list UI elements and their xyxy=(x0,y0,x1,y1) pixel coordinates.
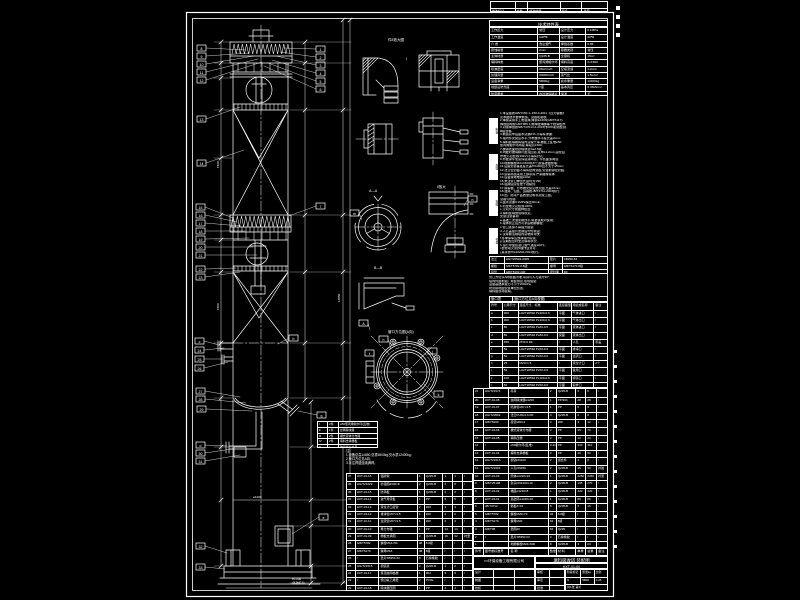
table-cell: 填料支承栅板 xyxy=(508,451,547,458)
table-row: 17GB/T8163接管⌀89×4420#312/ xyxy=(474,419,607,427)
table-cell: / xyxy=(355,578,379,584)
table-row: 审定 xyxy=(536,577,564,584)
table-cell: 填料种类 xyxy=(490,60,537,65)
table-cell: GB/T95 xyxy=(483,527,509,534)
table-cell: 3.4m³ xyxy=(548,443,556,450)
nozzle-table: 符号公称尺寸连接尺寸、标准连接面型式用途或名称备注a300HG/T20592 P… xyxy=(489,302,608,388)
table-cell: 接管⌀89×4 xyxy=(508,420,547,427)
table-cell: 8 xyxy=(585,458,596,465)
callout-tag: 18 xyxy=(196,228,245,234)
table-cell: 2 xyxy=(452,490,462,496)
table-cell: 1 xyxy=(417,474,424,481)
svg-text:5: 5 xyxy=(320,80,322,84)
table-cell: 2 xyxy=(417,564,424,570)
table-cell: / xyxy=(596,428,607,435)
table-cell: 栅板支承圈 xyxy=(378,534,416,540)
table-cell: 垫片 xyxy=(548,257,562,263)
table-cell: 含尘烟气 xyxy=(537,42,559,47)
table-cell: 1件 xyxy=(327,428,338,432)
callout-tag: 12 xyxy=(197,62,262,83)
table-cell: 270 xyxy=(585,481,596,488)
table-cell: 20# xyxy=(424,512,443,518)
cad-drawing-canvas: 891011121314151617181920212223c242526272… xyxy=(0,0,800,600)
table-cell: / xyxy=(462,556,472,562)
table-cell: 单重 xyxy=(575,549,585,556)
table-cell: 用途或名称 xyxy=(571,303,594,310)
table-cell: 2 xyxy=(417,482,424,488)
svg-text:27: 27 xyxy=(199,390,203,394)
table-cell: HXT-01-13 xyxy=(355,505,379,511)
margin-mark xyxy=(614,500,617,503)
table-cell: 2件 xyxy=(327,439,338,443)
table-cell: 带盖 xyxy=(593,340,607,346)
table-cell: f xyxy=(490,347,502,353)
table-cell: 再分布锥 xyxy=(378,527,416,533)
table-cell: ⌀50鲍尔环(乱堆) xyxy=(508,443,547,450)
table-cell: / xyxy=(462,586,472,591)
table-row: 设备净重5800kg充水重量12400kg xyxy=(490,78,607,84)
table-cell: GB/T6170 xyxy=(483,519,509,526)
drawing-label: 14850 xyxy=(337,293,341,302)
table-row: g50HG/T20592 PL50-0.6平面溢流口/ xyxy=(490,353,607,360)
table-cell: 石棉橡胶 xyxy=(424,556,443,562)
table-cell: 9 xyxy=(452,571,462,577)
table-cell: / xyxy=(596,405,607,412)
table-cell: 0.1MPa xyxy=(585,28,607,34)
table-row: 10HXT-01-03筒体⌀1220×101Q235-B22602260衬里 xyxy=(474,473,607,481)
table-cell: 9 xyxy=(474,481,483,488)
svg-text:23: 23 xyxy=(199,276,203,280)
table-cell: 溢流口 xyxy=(571,354,594,360)
table-row: Ⅱ1件丝网除沫器 xyxy=(318,427,377,432)
table-row: 校核 xyxy=(474,585,534,591)
margin-mark xyxy=(614,530,617,533)
svg-text:13: 13 xyxy=(200,118,204,122)
table-cell: / xyxy=(462,549,472,555)
table-cell: 2 xyxy=(575,504,585,511)
drawing-label: Ⅱ放大 xyxy=(437,184,446,189)
text-line: j.其余按HG20202-2014执行。 xyxy=(500,251,607,255)
table-cell: 1 xyxy=(417,519,424,525)
svg-text:1: 1 xyxy=(320,48,322,52)
margin-mark xyxy=(614,395,617,398)
table-cell: 10 xyxy=(474,474,483,481)
callout-tag: 1 xyxy=(284,46,325,52)
table-row xyxy=(491,2,607,8)
table-cell: 平面 xyxy=(557,318,571,324)
svg-text:3: 3 xyxy=(320,64,322,68)
table-cell: 4 xyxy=(452,505,462,511)
table-cell: Q235-B xyxy=(537,54,559,59)
table-cell: 螺栓 xyxy=(490,264,504,269)
table-cell: 数量 xyxy=(548,549,556,556)
table-cell: 连接尺寸、标准 xyxy=(518,303,557,310)
table-row: 审核 xyxy=(536,570,564,577)
svg-text:c: c xyxy=(199,340,201,344)
table-cell: 件号 xyxy=(474,549,483,556)
table-cell: 比例 xyxy=(594,570,607,577)
table-row: 填料种类聚丙烯鲍尔环填料高度2×1500 xyxy=(490,59,607,65)
table-cell: 基本风压 xyxy=(559,85,586,90)
table-row: 37HXT-01-16铭牌架1Q235-B11/ xyxy=(347,474,472,481)
svg-text:30: 30 xyxy=(199,452,203,456)
svg-text:21: 21 xyxy=(199,254,203,258)
column-elevation xyxy=(218,30,320,584)
legend-table: Ⅰ2件⌀50聚丙烯鲍尔环(乱堆)Ⅱ1件丝网除沫器Ⅲ2件槽式液体分布器Ⅳ2件填料支… xyxy=(317,421,378,448)
table-cell: / xyxy=(596,527,607,534)
table-cell: 5 xyxy=(452,497,462,503)
table-cell: 组合件 xyxy=(556,458,576,465)
table-cell: 2 xyxy=(548,428,556,435)
table-cell: 3 xyxy=(575,420,585,427)
callout-tag: f xyxy=(365,350,374,361)
table-row: 24HXT-01-17塔顶丝网格栅130499/ xyxy=(347,570,472,577)
svg-text:d: d xyxy=(200,444,202,448)
table-cell: h xyxy=(490,361,502,367)
table-cell: 连接面型式 xyxy=(557,303,571,310)
table-cell: 36 xyxy=(347,482,355,488)
table-cell: 30 xyxy=(347,527,355,533)
table-cell: 人孔 xyxy=(571,340,594,346)
table-cell: 25 xyxy=(347,564,355,570)
table-row: b300HG/T20592 PL300-0.6平面气体出口/ xyxy=(490,317,607,324)
table-cell: HXT-01-18 xyxy=(355,586,379,591)
margin-mark xyxy=(614,470,617,473)
table-cell: 20# xyxy=(424,519,443,525)
table-row: 介 质含尘烟气焊缝系数0.85 xyxy=(490,41,607,47)
svg-text:6: 6 xyxy=(320,88,322,92)
table-row: 13HXT-01-04填料支承栅板2PP2652/ xyxy=(474,450,607,458)
svg-text:14: 14 xyxy=(200,162,204,166)
table-cell: 螺栓M20×70 xyxy=(508,512,547,519)
margin-mark xyxy=(614,515,617,518)
table-cell: 充水重量 xyxy=(559,79,586,84)
table-cell: 视镜DN100 xyxy=(508,458,547,465)
table-row: 11HG/T21594人孔DN4502Q235-B4590衬胶 xyxy=(474,465,607,473)
table-cell: / xyxy=(462,541,472,547)
table-cell: 2 xyxy=(417,534,424,540)
table-cell: 4 xyxy=(474,519,483,526)
table-cell: XB350 δ3 xyxy=(562,257,607,263)
side-nozzles xyxy=(218,341,233,364)
callout-tag: 21 xyxy=(196,252,257,258)
table-cell: 气体进口 xyxy=(571,311,594,317)
table-cell: 35 xyxy=(575,428,585,435)
table-cell: 无 xyxy=(585,92,607,96)
table-cell: GB/T8163 20# xyxy=(504,270,548,274)
table-cell: 0.45kN/m² xyxy=(585,85,607,90)
table-row: 15HXT-01-05填料压栅2PP1224/ xyxy=(474,435,607,443)
table-cell: 90 xyxy=(585,466,596,473)
table-cell: PP xyxy=(556,451,576,458)
table-cell: / xyxy=(585,527,596,534)
table-row: 符号公称尺寸连接尺寸、标准连接面型式用途或名称备注 xyxy=(490,303,607,310)
table-cell: 空塔流速 xyxy=(559,67,586,72)
table-cell: 2 xyxy=(548,481,556,488)
table-cell: 25m³/m²h xyxy=(537,67,559,72)
table-row: 34HXT-01-14进气导流板1PP55/ xyxy=(347,496,472,503)
table-row: 8HXT-01-02裙座⌀1220×81Q235-B420420/ xyxy=(474,488,607,496)
svg-text:n: n xyxy=(472,198,474,202)
table-cell: 8.8级 xyxy=(424,541,443,547)
table-cell: / xyxy=(575,512,585,519)
table-cell: HG/T20592 PL80-0.6 xyxy=(518,333,557,339)
table-cell: 材 料 xyxy=(556,549,576,556)
bom-table-left: 37HXT-01-16铭牌架1Q235-B11/36HG/T21629补强圈d3… xyxy=(346,473,473,591)
table-cell: 32 xyxy=(452,534,462,540)
table-cell: 2260 xyxy=(575,474,585,481)
table-cell xyxy=(549,570,564,577)
table-cell: 420 xyxy=(585,489,596,496)
table-cell: GB/T5782 8.8级 xyxy=(504,264,548,269)
table-cell xyxy=(514,570,534,577)
svg-text:25: 25 xyxy=(198,358,202,362)
revision-strip: 修改标记处数修改依据签名日期 xyxy=(490,1,608,12)
callout-tag: 26 xyxy=(195,362,228,371)
table-cell: HXT-01-10 xyxy=(355,527,379,533)
table-cell: HG/T20592 PL50-0.6 xyxy=(518,354,557,360)
signature-grid-left: 设计制图校核 xyxy=(473,569,535,591)
table-cell: 8 xyxy=(585,413,596,420)
table-cell: 4 xyxy=(548,535,556,542)
table-cell: HG/T20592 PL300-0.6 xyxy=(518,318,557,324)
requirements-extra: 管口方位以A向视图为准,吊耳与人孔错开90°;塔内件由制造厂成套供货,现场组装;… xyxy=(489,276,608,295)
table-cell: 总重 xyxy=(585,549,596,556)
table-cell: Q235-B xyxy=(556,474,576,481)
table-cell: HXT-01-01 xyxy=(483,497,509,504)
table-cell xyxy=(493,586,513,591)
drawing-title: 填料吸收塔 装配图 xyxy=(535,556,608,563)
table-row: 19HXT-01-07喷淋管⌀57×3.51PP66/ xyxy=(474,404,607,412)
table-cell: GB/T5782 xyxy=(355,541,379,547)
table-cell: 封头DN1200×10 xyxy=(508,481,547,488)
drawing-label: 件8放大图 xyxy=(388,37,404,42)
table-cell xyxy=(527,2,559,8)
table-cell xyxy=(493,570,513,577)
table-cell: 26 xyxy=(575,451,585,458)
table-cell: 1 xyxy=(442,564,452,570)
table-cell: / xyxy=(452,541,462,547)
table-cell xyxy=(581,2,607,8)
table-cell: 5800kg xyxy=(537,79,559,84)
margin-mark xyxy=(614,440,617,443)
bom-header: 件号图号或标准号名 称数量材 料单重总重备注 xyxy=(473,548,608,556)
table-cell: / xyxy=(442,549,452,555)
table-cell: 平面 xyxy=(557,368,571,374)
table-cell: 符号 xyxy=(490,303,502,310)
table-cell: 450 xyxy=(502,340,518,346)
table-cell: / xyxy=(462,474,472,481)
table-cell: 工作压力 xyxy=(490,28,537,34)
table-cell: / xyxy=(593,376,607,382)
table-cell: Q235-B xyxy=(556,481,576,488)
table-cell: 16 xyxy=(585,504,596,511)
table-cell: HG/T20592 PL300-0.6 xyxy=(518,311,557,317)
table-cell: 64 xyxy=(548,527,556,534)
table-cell: 1 xyxy=(452,474,462,481)
table-cell: 填料压栅 xyxy=(508,436,547,443)
table-cell: / xyxy=(327,445,338,448)
table-cell: 3 xyxy=(474,527,483,534)
notes-block: 注: 1.设备总高14850,总重5800kg,充水重12400kg;2.管口方… xyxy=(346,449,478,471)
table-cell: 8级 xyxy=(424,549,443,555)
table-cell: 28 xyxy=(585,398,596,405)
table-cell: PP xyxy=(556,443,576,450)
table-cell: PP/304 xyxy=(556,398,576,405)
table-cell: / xyxy=(596,443,607,450)
table-cell: 2个 xyxy=(593,361,607,367)
table-cell: ≤40℃ xyxy=(537,35,559,40)
table-cell: / xyxy=(462,512,472,518)
table-cell: 4 xyxy=(442,482,452,488)
table-cell: 2 xyxy=(575,413,585,420)
table-cell: / xyxy=(575,519,585,526)
table-cell: 35 xyxy=(347,490,355,496)
table-cell: 突面 xyxy=(557,333,571,339)
table-row: Ⅰ2件⌀50聚丙烯鲍尔环(乱堆) xyxy=(318,422,377,427)
table-cell: / xyxy=(596,512,607,519)
table-cell: 26 xyxy=(347,556,355,562)
table-row: 处理风量30000m³/h液气比1.5L/m³ xyxy=(490,72,607,78)
table-cell xyxy=(549,578,564,584)
table-cell: 37 xyxy=(347,474,355,481)
table-cell: 25 xyxy=(502,361,518,367)
callout-tag: 19 xyxy=(196,236,249,242)
table-cell: GB/T6170 8级 xyxy=(562,264,607,269)
svg-text:29: 29 xyxy=(200,408,204,412)
table-cell: HG/T20592 xyxy=(483,413,509,420)
table-cell: / xyxy=(462,482,472,488)
table-cell: 15m³ xyxy=(585,54,607,59)
table-cell: 制图 xyxy=(474,578,493,584)
svg-text:12: 12 xyxy=(200,79,204,83)
table-cell: Ⅲ xyxy=(318,434,327,438)
callout-tag: 27 xyxy=(196,388,240,397)
table-cell: 304 xyxy=(424,571,443,577)
svg-text:f: f xyxy=(369,352,370,356)
table-cell: / xyxy=(355,556,379,562)
table-cell: 铭牌架 xyxy=(378,474,416,481)
table-cell: 27 xyxy=(347,549,355,555)
table-cell: 槽式液体分布器 xyxy=(338,434,377,438)
table-cell: 液体出口 xyxy=(571,333,594,339)
table-cell: 14 xyxy=(452,527,462,533)
table-cell: HXT-01-14 xyxy=(355,497,379,503)
margin-mark xyxy=(616,15,620,19)
table-cell: HXT-01-15 xyxy=(355,490,379,496)
table-row: 25HG/T21515视镜罩2Q235-B12/ xyxy=(347,563,472,570)
table-cell: 图号或标准号 xyxy=(483,549,509,556)
table-row: 26/垫片XB350 δ38石棉橡胶/// xyxy=(347,555,472,562)
table-cell: 修改标记 xyxy=(491,9,515,13)
table-row: 31HXT-01-11溢流管⌀57×3.5120#33/ xyxy=(347,518,472,525)
table-row: h25M20×1.5/液位计口2个 xyxy=(490,360,607,367)
table-cell: / xyxy=(593,318,607,324)
table-cell: 4 xyxy=(442,586,452,591)
margin-mark xyxy=(614,350,617,353)
table-cell: 17 xyxy=(474,420,483,427)
table-cell: 设计压力 xyxy=(559,28,586,34)
callout-tag: 20 xyxy=(196,244,253,250)
table-cell: 吊耳 xyxy=(508,389,547,397)
svg-text:j: j xyxy=(431,350,433,354)
characteristics-table: 工作压力常压设计压力0.1MPa工作温度≤40℃设计温度60℃介 质含尘烟气焊缝… xyxy=(489,27,608,96)
table-cell: PN0.6 RF xyxy=(518,340,557,346)
table-cell xyxy=(515,2,528,8)
table-cell: k xyxy=(490,376,502,382)
table-cell: / xyxy=(452,556,462,562)
table-cell: 聚丙烯鲍尔环 xyxy=(537,60,559,65)
table-cell: Ⅰ xyxy=(318,422,327,427)
company-name: ××环保设备工程有限公司 xyxy=(473,556,535,569)
table-cell: 2 xyxy=(417,505,424,511)
table-cell: 32 xyxy=(548,512,556,519)
table-cell: 玻璃鳞片衬里 xyxy=(338,445,377,448)
table-cell: 2 xyxy=(442,505,452,511)
table-cell: 50 xyxy=(502,354,518,360)
table-cell: 2 xyxy=(474,535,483,542)
table-cell: 修改依据 xyxy=(527,9,559,13)
table-cell: 平面 xyxy=(557,325,571,331)
table-cell xyxy=(493,578,513,584)
table-cell: HXT-01-17 xyxy=(355,571,379,577)
table-cell: / xyxy=(575,527,585,534)
table-cell: / xyxy=(596,535,607,542)
table-cell: 1 xyxy=(417,571,424,577)
table-row: 33HXT-01-13液位计口接管220#24/ xyxy=(347,504,472,511)
table-cell: 86 xyxy=(585,497,596,504)
table-row: 制图 xyxy=(474,577,534,584)
table-cell: / xyxy=(596,420,607,427)
table-row: Ⅴ/玻璃鳞片衬里 xyxy=(318,444,377,448)
table-cell: / xyxy=(462,578,472,584)
table-cell: 主体材质 xyxy=(490,54,537,59)
margin-mark xyxy=(616,24,620,28)
table-cell: 310 xyxy=(575,443,585,450)
table-row: 防腐要求内衬玻璃鳞片保温无 xyxy=(490,91,607,96)
svg-text:24: 24 xyxy=(198,349,202,353)
svg-text:31: 31 xyxy=(199,460,203,464)
table-cell: HG/T21515 xyxy=(355,564,379,570)
table-cell: 日期 xyxy=(581,9,607,13)
table-cell: / xyxy=(452,549,462,555)
table-cell: 20 xyxy=(474,398,483,405)
drawing-label: A—A xyxy=(369,189,378,193)
callout-tag: 25 xyxy=(195,356,222,362)
table-cell: HG/T21574 xyxy=(483,389,509,397)
flange-face-view xyxy=(366,339,440,418)
table-cell: 52 xyxy=(585,451,596,458)
table-cell: 全容积 xyxy=(559,54,586,59)
table-cell: / xyxy=(575,535,585,542)
svg-text:19: 19 xyxy=(199,238,203,242)
table-cell: 80 xyxy=(502,325,518,331)
table-row: 7HXT-01-01基础环⌀1420×161Q235-B8686/ xyxy=(474,496,607,504)
table-row: 工作温度≤40℃设计温度60℃ xyxy=(490,34,607,40)
table-cell: 备注 xyxy=(593,303,607,310)
table-cell: / xyxy=(483,443,509,450)
table-cell: 1 xyxy=(548,398,556,405)
table-cell: / xyxy=(462,519,472,525)
requirements-tab-1: 制造 xyxy=(489,118,498,144)
table-cell: 24 xyxy=(347,571,355,577)
table-cell: 裙座⌀1220×8 xyxy=(508,489,547,496)
table-cell: 2260 xyxy=(585,474,596,481)
drawing-label: Ⅰ xyxy=(406,57,407,61)
flange-standard-table: 法兰HG/T20592-2009垫片XB350 δ3螺栓GB/T5782 8.8… xyxy=(489,256,608,274)
table-cell: ⌀50聚丙烯鲍尔环(乱堆) xyxy=(338,422,377,427)
table-row: j50HG/T20592 PL50-0.6平面备用口/ xyxy=(490,367,607,374)
